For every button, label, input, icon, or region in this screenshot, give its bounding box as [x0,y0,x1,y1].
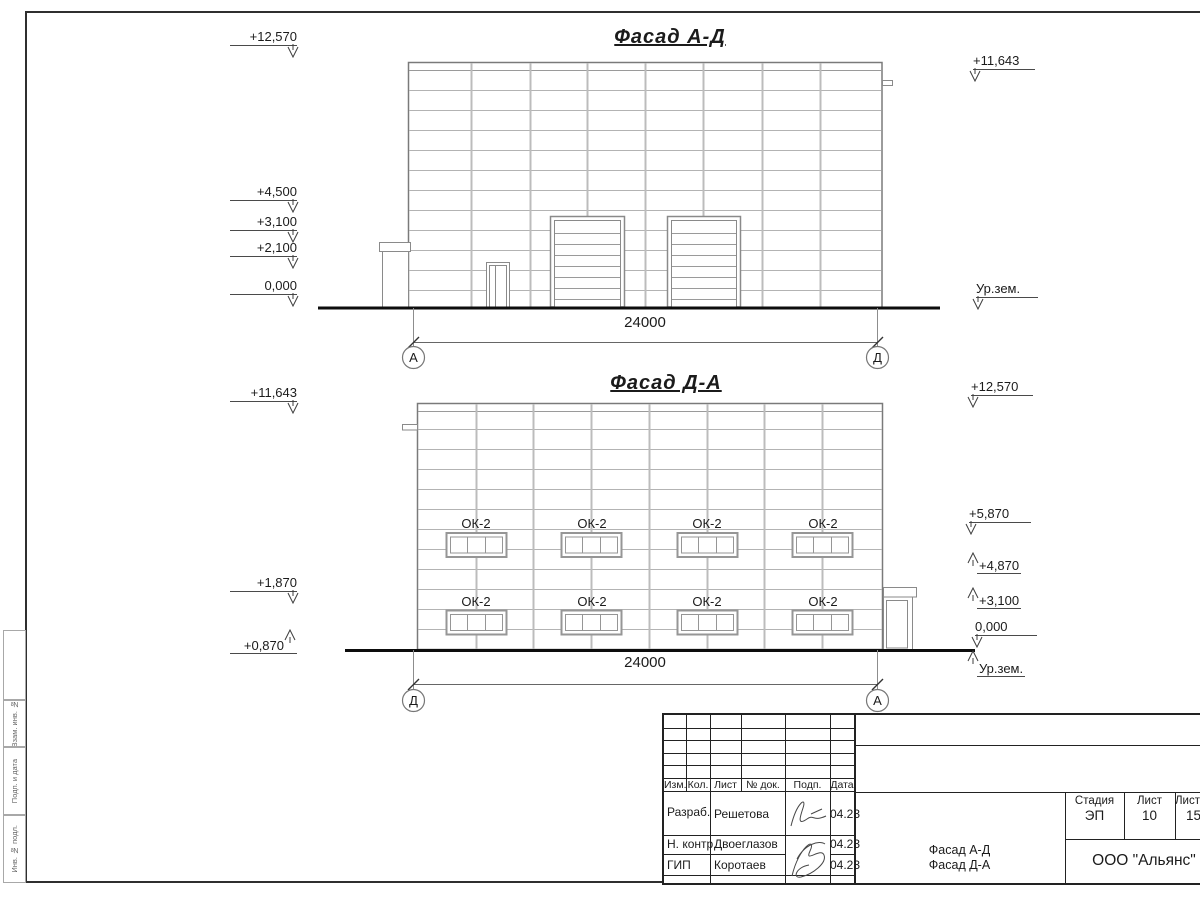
grid-line [664,740,854,741]
elevation-arrow-down-icon [971,296,985,310]
elevation-arrow-down-icon [970,634,984,648]
gate-2 [668,217,741,308]
elevation-arrow-down-icon [968,68,982,82]
drawing-sheet: { "facade_ad": { "title": "Фасад А-Д", "… [0,0,1200,900]
doc-title-line1: Фасад А-Д [854,843,1065,857]
signer-name: Коротаев [714,858,766,872]
window-ok2 [447,611,507,635]
signer-role: Разраб. [667,805,710,819]
elevation-mark: +5,870 [969,506,1031,523]
grid-line [664,765,854,766]
dimension-value-ad: 24000 [595,314,695,331]
col-header-podp: Подп. [785,779,830,791]
elevation-arrow-down-icon [286,255,300,269]
elevation-mark: 0,000 [230,278,297,295]
title-block: Изм. Кол. Лист № док. Подп. Дата Разраб.… [662,713,1200,885]
col-header-kol: Кол. [686,779,710,791]
elevation-mark: +12,570 [971,379,1033,396]
window-label: ОК-2 [793,594,853,609]
annex-left [380,243,411,308]
sheet-label: Лист [1124,795,1175,807]
window-label: ОК-2 [562,516,622,531]
elevation-mark: +3,100 [230,214,297,231]
signer-date: 04.23 [830,807,854,821]
elevation-mark: +0,870 [230,629,297,645]
facade-da-title: Фасад Д-А [516,372,816,395]
annex-right [884,588,917,651]
window-ok2 [447,533,507,557]
roof-bracket [883,81,893,86]
elevation-mark: 0,000 [975,619,1037,636]
elevation-arrow-down-icon [286,400,300,414]
window-label: ОК-2 [677,594,737,609]
grid-line [664,753,854,754]
window-ok2 [562,533,622,557]
elevation-mark: +12,570 [230,29,297,46]
window-label: ОК-2 [446,594,506,609]
sheet-value: 10 [1124,810,1175,822]
col-header-izm: Изм. [664,779,686,791]
axis-letter: Д [873,350,882,365]
window-label: ОК-2 [677,516,737,531]
col-header-dok: № док. [741,779,785,791]
elevation-arrow-down-icon [966,394,980,408]
elevation-arrow-up-icon [283,629,297,643]
signer-name: Решетова [714,807,769,821]
grid-line [664,854,785,855]
ground-level-mark: Ур.зем. [976,281,1038,298]
grid-line [854,792,1200,793]
axis-letter: А [873,693,882,708]
axis-letter: А [409,350,418,365]
grid-line [854,745,1200,746]
elevation-arrow-down-icon [286,44,300,58]
stage-label: Стадия [1065,795,1124,807]
col-header-data: Дата [830,779,854,791]
elevation-arrow-down-icon [964,521,978,535]
elevation-mark: +4,500 [230,184,297,201]
entrance-door [487,263,510,308]
grid-line [830,854,854,855]
elevation-mark: +11,643 [973,53,1035,70]
axis-letter: Д [409,693,418,708]
signature-icon [787,794,830,834]
elevation-mark: +11,643 [230,385,297,402]
elevation-arrow-down-icon [286,590,300,604]
grid-line [664,791,854,792]
elevation-mark: +2,100 [230,240,297,257]
window-ok2 [678,611,738,635]
col-header-list: Лист [710,779,741,791]
signer-date: 04.23 [830,858,854,872]
signer-role: ГИП [667,858,691,872]
signer-name: Двоеглазов [714,837,778,851]
facade-ad-title: Фасад А-Д [520,26,820,49]
window-ok2 [793,611,853,635]
roof-bracket [403,425,418,431]
signer-date: 04.23 [830,837,854,851]
window-ok2 [793,533,853,557]
window-label: ОК-2 [562,594,622,609]
dimension-value-da: 24000 [595,654,695,671]
window-ok2 [678,533,738,557]
signer-role: Н. контр. [667,837,717,851]
sheets-value: 15 [1175,810,1200,822]
grid-line [664,728,854,729]
elevation-arrow-down-icon [286,199,300,213]
window-label: ОК-2 [793,516,853,531]
elevation-arrow-down-icon [286,293,300,307]
company-name: ООО "Альянс" [1074,855,1200,867]
window-ok2 [562,611,622,635]
doc-title-line2: Фасад Д-А [854,858,1065,872]
signature-icon [785,832,830,882]
gate-1 [551,217,625,308]
stage-value: ЭП [1065,810,1124,822]
sheets-label: Листов [1175,795,1200,807]
grid-line [1065,839,1200,840]
elevation-mark: +1,870 [230,575,297,592]
window-label: ОК-2 [446,516,506,531]
